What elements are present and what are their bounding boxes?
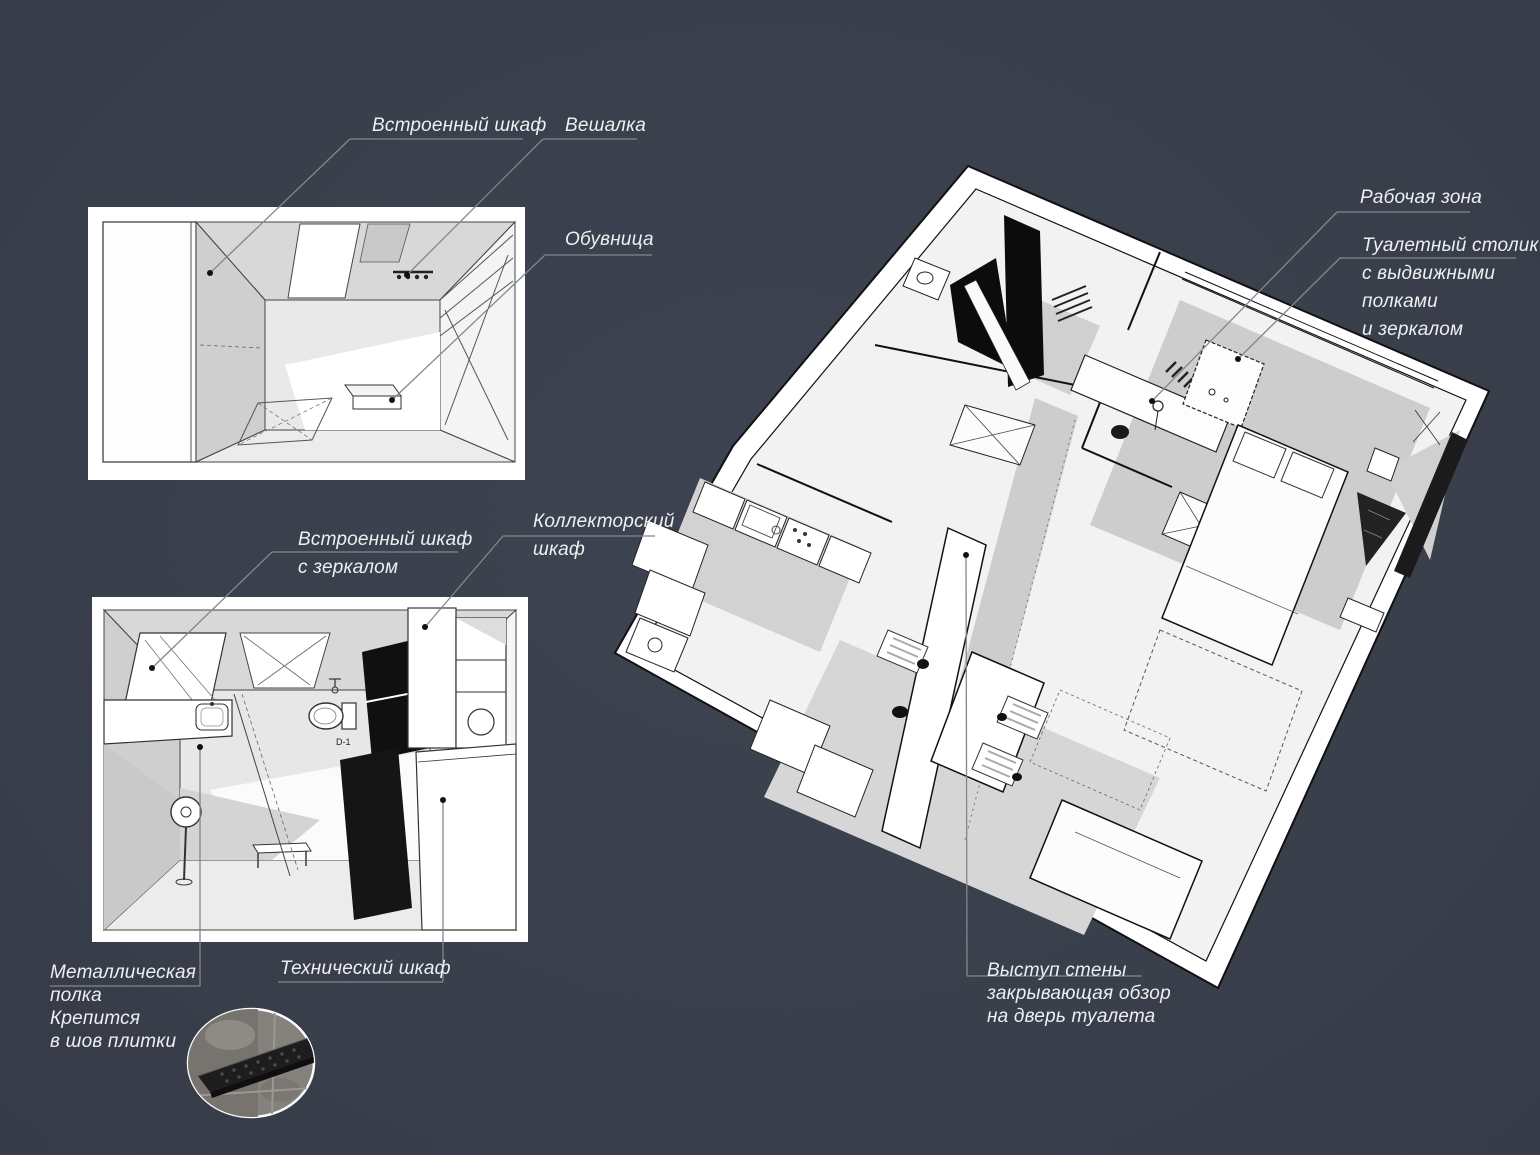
hallway-top-view-image: [88, 207, 525, 480]
shoe-bench: [345, 385, 401, 409]
label-line: Крепится: [50, 1007, 196, 1030]
bathroom-top-view-image: D-1: [92, 597, 528, 942]
label-hanger-text: Вешалка: [565, 114, 646, 138]
label-dressing-table: Туалетный столик с выдвижными полками и …: [1362, 232, 1539, 344]
technical-cabinet: [416, 744, 516, 930]
label-line: в шов плитки: [50, 1030, 196, 1053]
label-line: Встроенный шкаф: [298, 526, 472, 554]
label-hanger: Вешалка: [565, 114, 646, 138]
label-shoe-rack: Обувница: [565, 228, 654, 252]
label-line: Коллекторский: [533, 508, 674, 536]
label-shoe-rack-text: Обувница: [565, 228, 654, 252]
label-line: шкаф: [533, 536, 674, 564]
label-line: на дверь туалета: [987, 1005, 1171, 1028]
label-builtin-wardrobe-text: Встроенный шкаф: [372, 114, 546, 138]
label-line: и зеркалом: [1362, 316, 1539, 344]
label-technical-cabinet-text: Технический шкаф: [280, 957, 451, 981]
label-line: Выступ стены: [987, 959, 1171, 982]
design-board: D-1: [0, 0, 1540, 1150]
collector-cabinet: [408, 608, 506, 748]
toilet: [309, 703, 356, 729]
label-line: Металлическая: [50, 961, 196, 984]
label-work-zone-text: Рабочая зона: [1360, 186, 1482, 210]
label-metal-shelf: Металлическая полка Крепится в шов плитк…: [50, 961, 196, 1053]
label-technical-cabinet: Технический шкаф: [280, 957, 451, 981]
drain-marker: D-1: [336, 737, 351, 747]
board-graphics: D-1: [0, 0, 1540, 1150]
label-work-zone: Рабочая зона: [1360, 186, 1482, 210]
label-line: Туалетный столик: [1362, 232, 1539, 260]
label-builtin-wardrobe: Встроенный шкаф: [372, 114, 546, 138]
apartment-overview-image: [615, 166, 1489, 988]
label-line: полками: [1362, 288, 1539, 316]
metal-shelf-photo: [188, 1008, 322, 1120]
label-line: закрывающая обзор: [987, 982, 1171, 1005]
label-line: полка: [50, 984, 196, 1007]
label-builtin-wardrobe-mirror: Встроенный шкаф с зеркалом: [298, 526, 472, 582]
label-wall-ledge: Выступ стены закрывающая обзор на дверь …: [987, 959, 1171, 1028]
washbasin-counter: [104, 700, 232, 744]
label-line: с зеркалом: [298, 554, 472, 582]
label-line: с выдвижными: [1362, 260, 1539, 288]
label-collector-cabinet: Коллекторский шкаф: [533, 508, 674, 564]
